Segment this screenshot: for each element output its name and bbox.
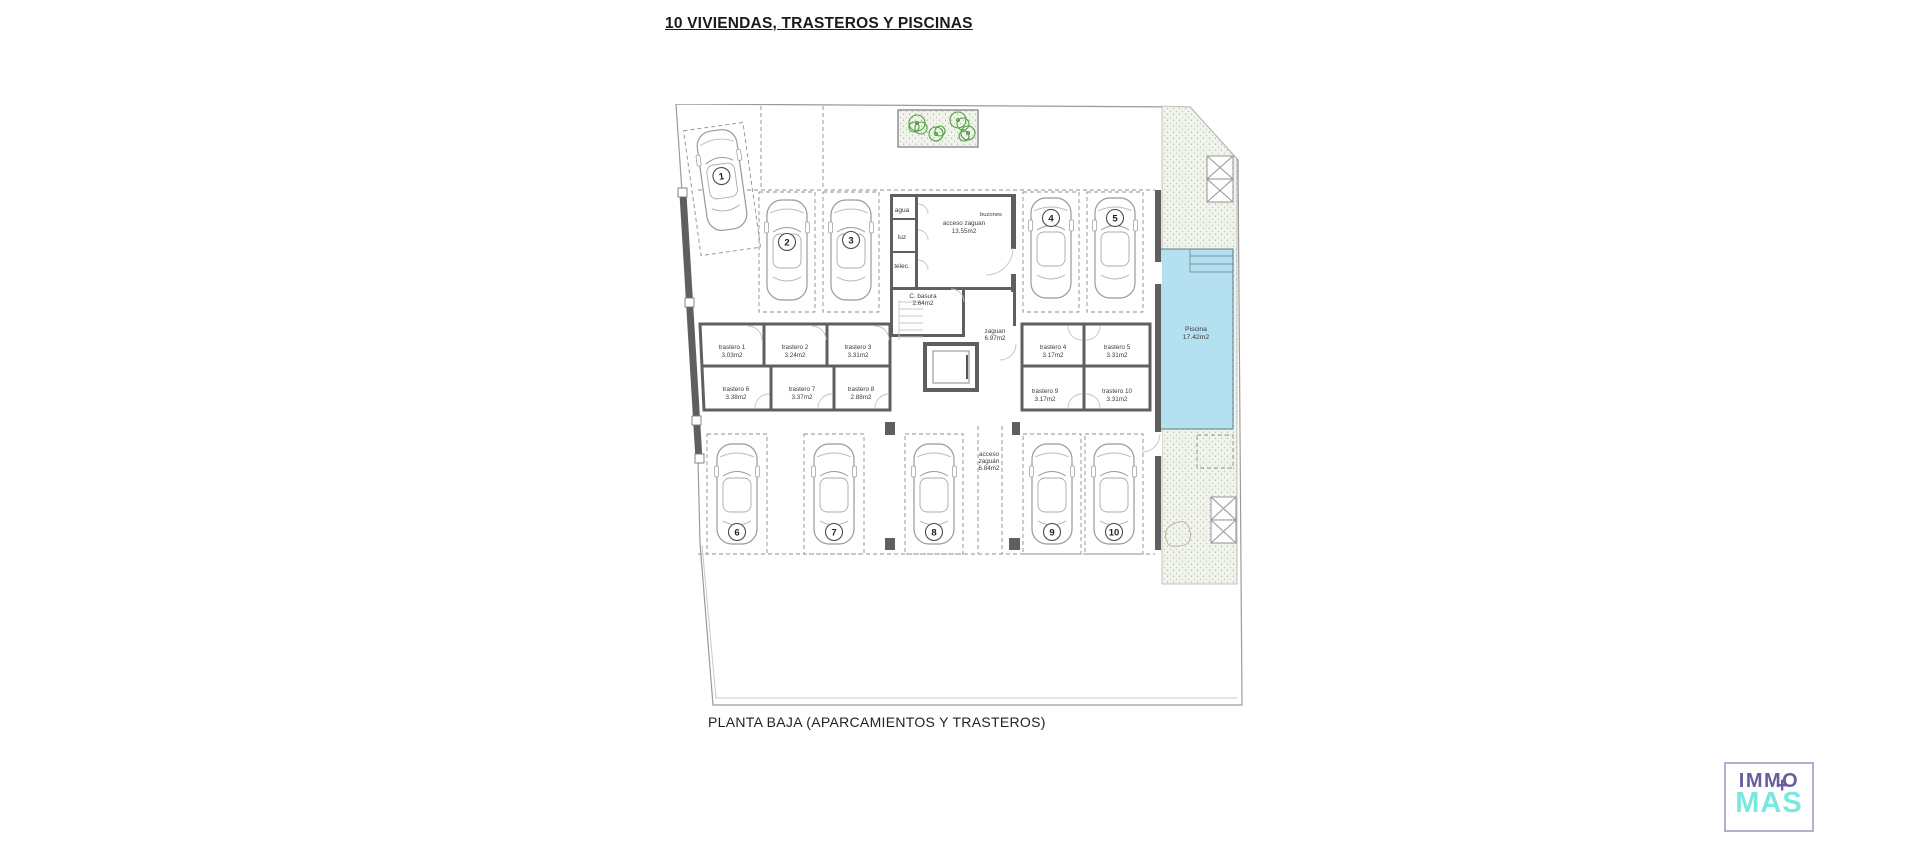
plan-caption: PLANTA BAJA (APARCAMIENTOS Y TRASTEROS) — [708, 714, 1046, 730]
trastero-2-name: trastero 2 — [782, 344, 809, 351]
car-7: 7 — [812, 444, 857, 544]
trastero-6-name: trastero 6 — [723, 386, 750, 393]
floor-plan-drawing: 1 2 3 4 5 6 7 8 9 10 agua luz telec. acc… — [671, 104, 1246, 712]
room-area-acceso-sur: 6.84m2 — [978, 465, 1000, 472]
room-label-acceso-sur-2: zaguán — [979, 458, 1000, 465]
room-label-zaguan: zaguan — [985, 328, 1006, 335]
room-label-piscina: Piscina — [1185, 326, 1207, 333]
car-5: 5 — [1093, 198, 1138, 298]
room-label-acceso-sur-1: acceso — [979, 451, 999, 458]
trastero-3-area: 3.31m2 — [847, 352, 869, 359]
trastero-8-name: trastero 8 — [848, 386, 875, 393]
car-8: 8 — [912, 444, 957, 544]
svg-text:9: 9 — [1049, 528, 1054, 539]
svg-text:3: 3 — [848, 236, 853, 247]
trastero-2-area: 3.24m2 — [784, 352, 806, 359]
trastero-4-area: 3.17m2 — [1042, 352, 1064, 359]
car-6: 6 — [715, 444, 760, 544]
trastero-5-area: 3.31m2 — [1106, 352, 1128, 359]
room-label-luz: luz — [898, 234, 906, 241]
immomas-logo: IMMO MAS + — [1724, 762, 1814, 832]
trastero-4-name: trastero 4 — [1040, 344, 1067, 351]
svg-text:6: 6 — [734, 528, 739, 539]
car-4: 4 — [1029, 198, 1074, 298]
trastero-10-name: trastero 10 — [1102, 388, 1133, 395]
room-label-basura: C. basura — [909, 293, 937, 300]
svg-text:10: 10 — [1109, 528, 1120, 539]
room-area-piscina: 17.42m2 — [1183, 334, 1210, 341]
page-title: 10 VIVIENDAS, TRASTEROS Y PISCINAS — [665, 15, 973, 33]
room-area-zaguan: 6.97m2 — [984, 335, 1006, 342]
trastero-1-area: 3.03m2 — [721, 352, 743, 359]
trastero-7-area: 3.37m2 — [791, 394, 813, 401]
svg-text:4: 4 — [1048, 214, 1054, 225]
room-area-acceso-zaguan: 13.55m2 — [952, 228, 977, 235]
room-area-basura: 2.64m2 — [912, 300, 934, 307]
car-10: 10 — [1092, 444, 1137, 544]
svg-text:7: 7 — [831, 528, 836, 539]
room-label-telec: telec. — [894, 263, 910, 270]
trastero-8-area: 2.88m2 — [850, 394, 872, 401]
trastero-7-name: trastero 7 — [789, 386, 816, 393]
car-2: 2 — [765, 200, 810, 300]
car-3: 3 — [829, 200, 874, 300]
trastero-6-area: 3.38m2 — [725, 394, 747, 401]
trastero-5-name: trastero 5 — [1104, 344, 1131, 351]
room-label-buzones: buzones — [980, 212, 1002, 218]
room-label-agua: agua — [895, 207, 910, 214]
trastero-10-area: 3.31m2 — [1106, 396, 1128, 403]
logo-plus-icon: + — [1776, 775, 1788, 796]
trastero-3-name: trastero 3 — [845, 344, 872, 351]
logo-text-mas: MAS — [1726, 790, 1812, 818]
svg-text:5: 5 — [1112, 214, 1118, 225]
trastero-9-name: trastero 9 — [1032, 388, 1059, 395]
floor-plan: 1 2 3 4 5 6 7 8 9 10 agua luz telec. acc… — [671, 104, 1246, 712]
svg-text:2: 2 — [784, 238, 789, 249]
svg-text:8: 8 — [931, 528, 936, 539]
trastero-9-area: 3.17m2 — [1034, 396, 1056, 403]
trastero-1-name: trastero 1 — [719, 344, 746, 351]
car-9: 9 — [1030, 444, 1075, 544]
planter-box — [898, 110, 978, 147]
room-label-acceso-zaguan: acceso zaguan — [943, 220, 986, 227]
